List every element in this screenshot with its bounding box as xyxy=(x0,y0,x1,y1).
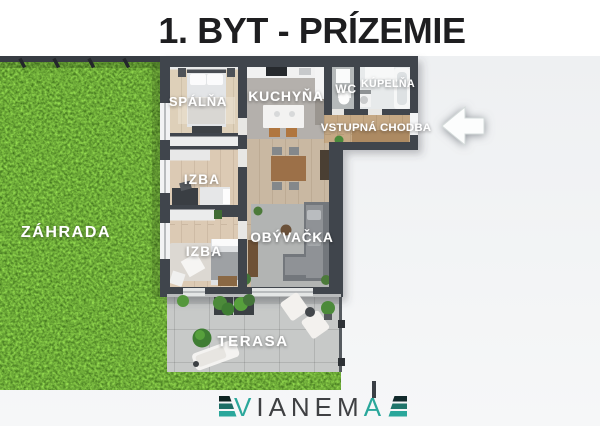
svg-text:ZÁHRADA: ZÁHRADA xyxy=(21,222,111,241)
svg-text:OBÝVAČKA: OBÝVAČKA xyxy=(250,230,333,245)
svg-text:TERASA: TERASA xyxy=(217,333,288,350)
svg-text:KUCHYŇA: KUCHYŇA xyxy=(248,87,324,104)
svg-text:IZBA: IZBA xyxy=(186,244,222,259)
svg-text:SPÁLŇA: SPÁLŇA xyxy=(169,94,227,109)
svg-text:KÚPEĽŇA: KÚPEĽŇA xyxy=(361,77,415,90)
svg-text:1. BYT - PRÍZEMIE: 1. BYT - PRÍZEMIE xyxy=(158,10,465,51)
svg-text:WC: WC xyxy=(335,82,357,96)
svg-text:VIANEMA: VIANEMA xyxy=(234,392,386,422)
svg-text:IZBA: IZBA xyxy=(184,172,220,187)
svg-text:VSTUPNÁ CHODBA: VSTUPNÁ CHODBA xyxy=(321,121,431,134)
